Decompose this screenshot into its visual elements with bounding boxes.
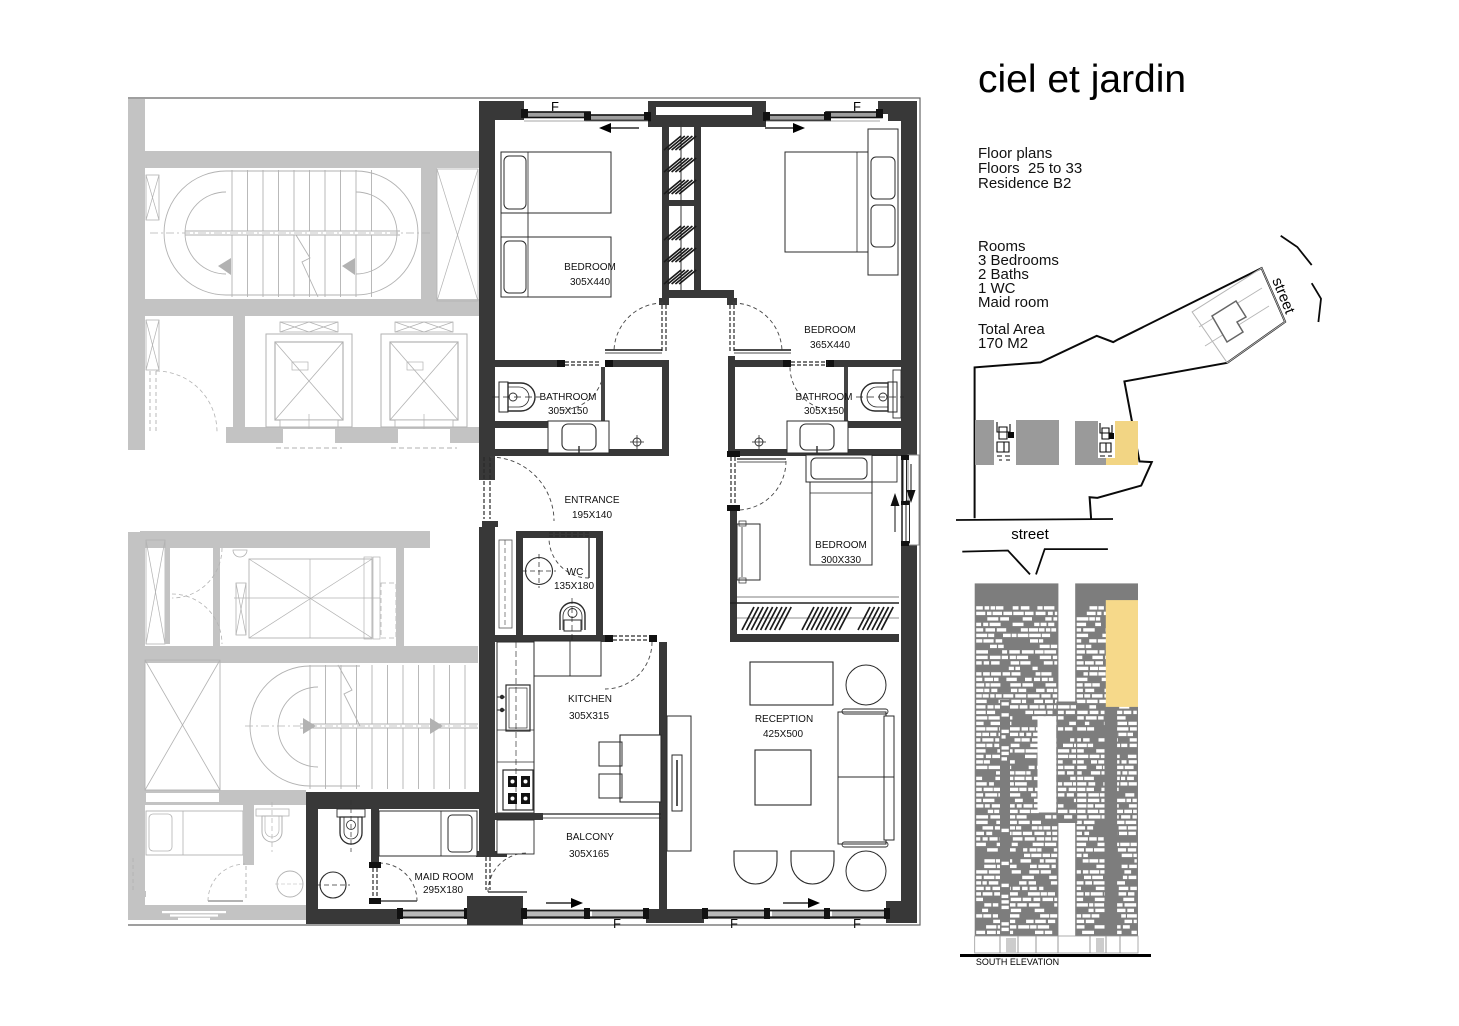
svg-text:BEDROOM: BEDROOM [815,540,867,551]
svg-text:BEDROOM: BEDROOM [804,325,856,336]
svg-text:170 M2: 170 M2 [978,335,1028,352]
svg-text:Maid room: Maid room [978,294,1049,311]
svg-text:F: F [853,99,861,114]
svg-text:WC: WC [567,567,584,578]
svg-text:BEDROOM: BEDROOM [564,262,616,273]
svg-text:street: street [1011,526,1049,543]
svg-text:300X330: 300X330 [821,555,861,566]
svg-text:BATHROOM: BATHROOM [795,392,852,403]
svg-text:ENTRANCE: ENTRANCE [564,495,619,506]
svg-text:295X180: 295X180 [423,885,463,896]
svg-text:425X500: 425X500 [763,729,803,740]
svg-text:365X440: 365X440 [810,340,850,351]
svg-text:SOUTH ELEVATION: SOUTH ELEVATION [976,957,1059,967]
svg-text:305X165: 305X165 [569,849,609,860]
svg-text:F: F [613,916,621,931]
svg-text:KITCHEN: KITCHEN [568,694,612,705]
svg-text:MAID ROOM: MAID ROOM [415,872,474,883]
svg-text:305X315: 305X315 [569,711,609,722]
svg-text:BATHROOM: BATHROOM [539,392,596,403]
svg-text:305X150: 305X150 [548,406,588,417]
svg-text:305X150: 305X150 [804,406,844,417]
svg-text:305X440: 305X440 [570,277,610,288]
svg-text:195X140: 195X140 [572,510,612,521]
svg-text:135X180: 135X180 [554,581,594,592]
svg-text:BALCONY: BALCONY [566,832,614,843]
svg-text:ciel et jardin: ciel et jardin [978,58,1186,101]
svg-text:F: F [853,916,861,931]
svg-text:F: F [551,99,559,114]
svg-text:F: F [730,916,738,931]
svg-text:RECEPTION: RECEPTION [755,714,813,725]
svg-text:Residence B2: Residence B2 [978,175,1071,192]
